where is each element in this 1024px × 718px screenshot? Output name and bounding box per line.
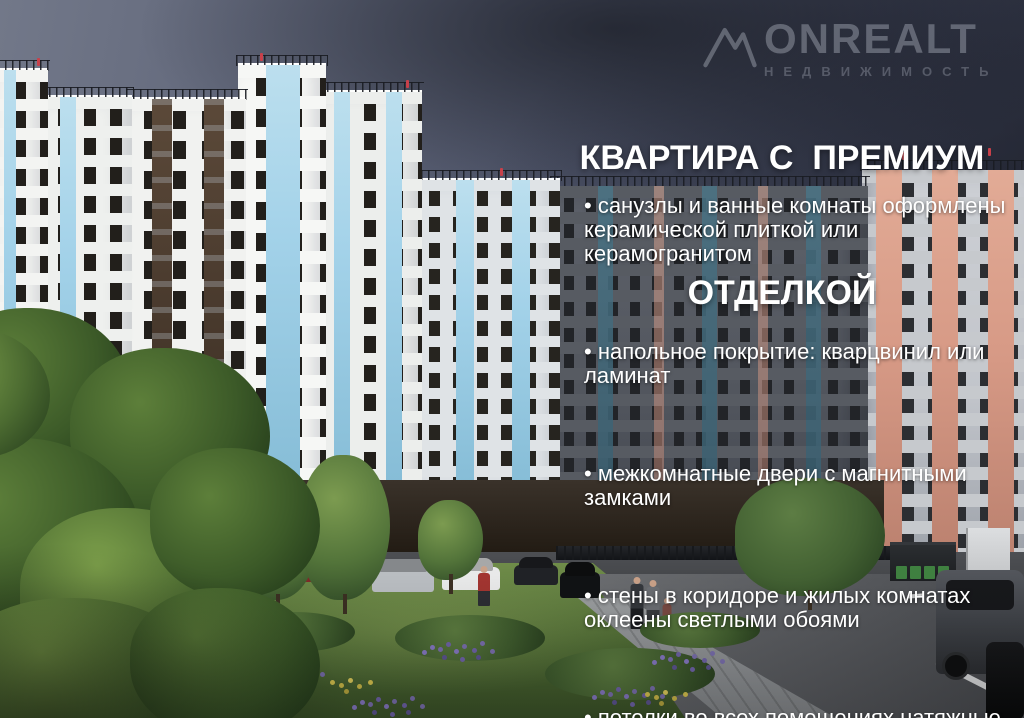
feature-item-flooring: • напольное покрытие: кварцвинил или лам…	[584, 340, 1024, 388]
promo-image: ONREALT НЕДВИЖИМОСТЬ КВАРТИРА С ПРЕМИУМ …	[0, 0, 1024, 718]
blue-panel-stripe	[456, 180, 474, 492]
feature-item-bathrooms: • санузлы и ванные комнаты оформлены кер…	[584, 194, 1024, 266]
tree	[418, 500, 483, 580]
tree-crown	[418, 500, 483, 580]
antenna-light	[37, 58, 40, 66]
feature-list: • санузлы и ванные комнаты оформлены кер…	[584, 146, 1024, 718]
antenna-light	[406, 80, 409, 88]
flower-patch-purple	[430, 645, 435, 650]
blue-panel-stripe	[386, 92, 402, 492]
blue-panel-stripe	[512, 180, 530, 492]
feature-item-doors: • межкомнатные двери с магнитными замкам…	[584, 462, 1024, 510]
car-dark-2	[514, 565, 558, 585]
antenna-light	[260, 53, 263, 61]
antenna-light	[500, 168, 503, 176]
tree-trunk	[449, 574, 453, 594]
leaf-cluster	[150, 448, 320, 598]
feature-item-walls: • стены в коридоре и жилых комнатах окле…	[584, 584, 1024, 632]
building-left-wing-far	[416, 178, 560, 492]
tree-foreground	[0, 298, 380, 718]
leaf-cluster	[130, 588, 320, 718]
window-grid	[416, 180, 560, 492]
bush	[395, 615, 545, 661]
feature-item-ceilings: • потолки во всех помещениях натяжные со…	[584, 706, 1024, 718]
